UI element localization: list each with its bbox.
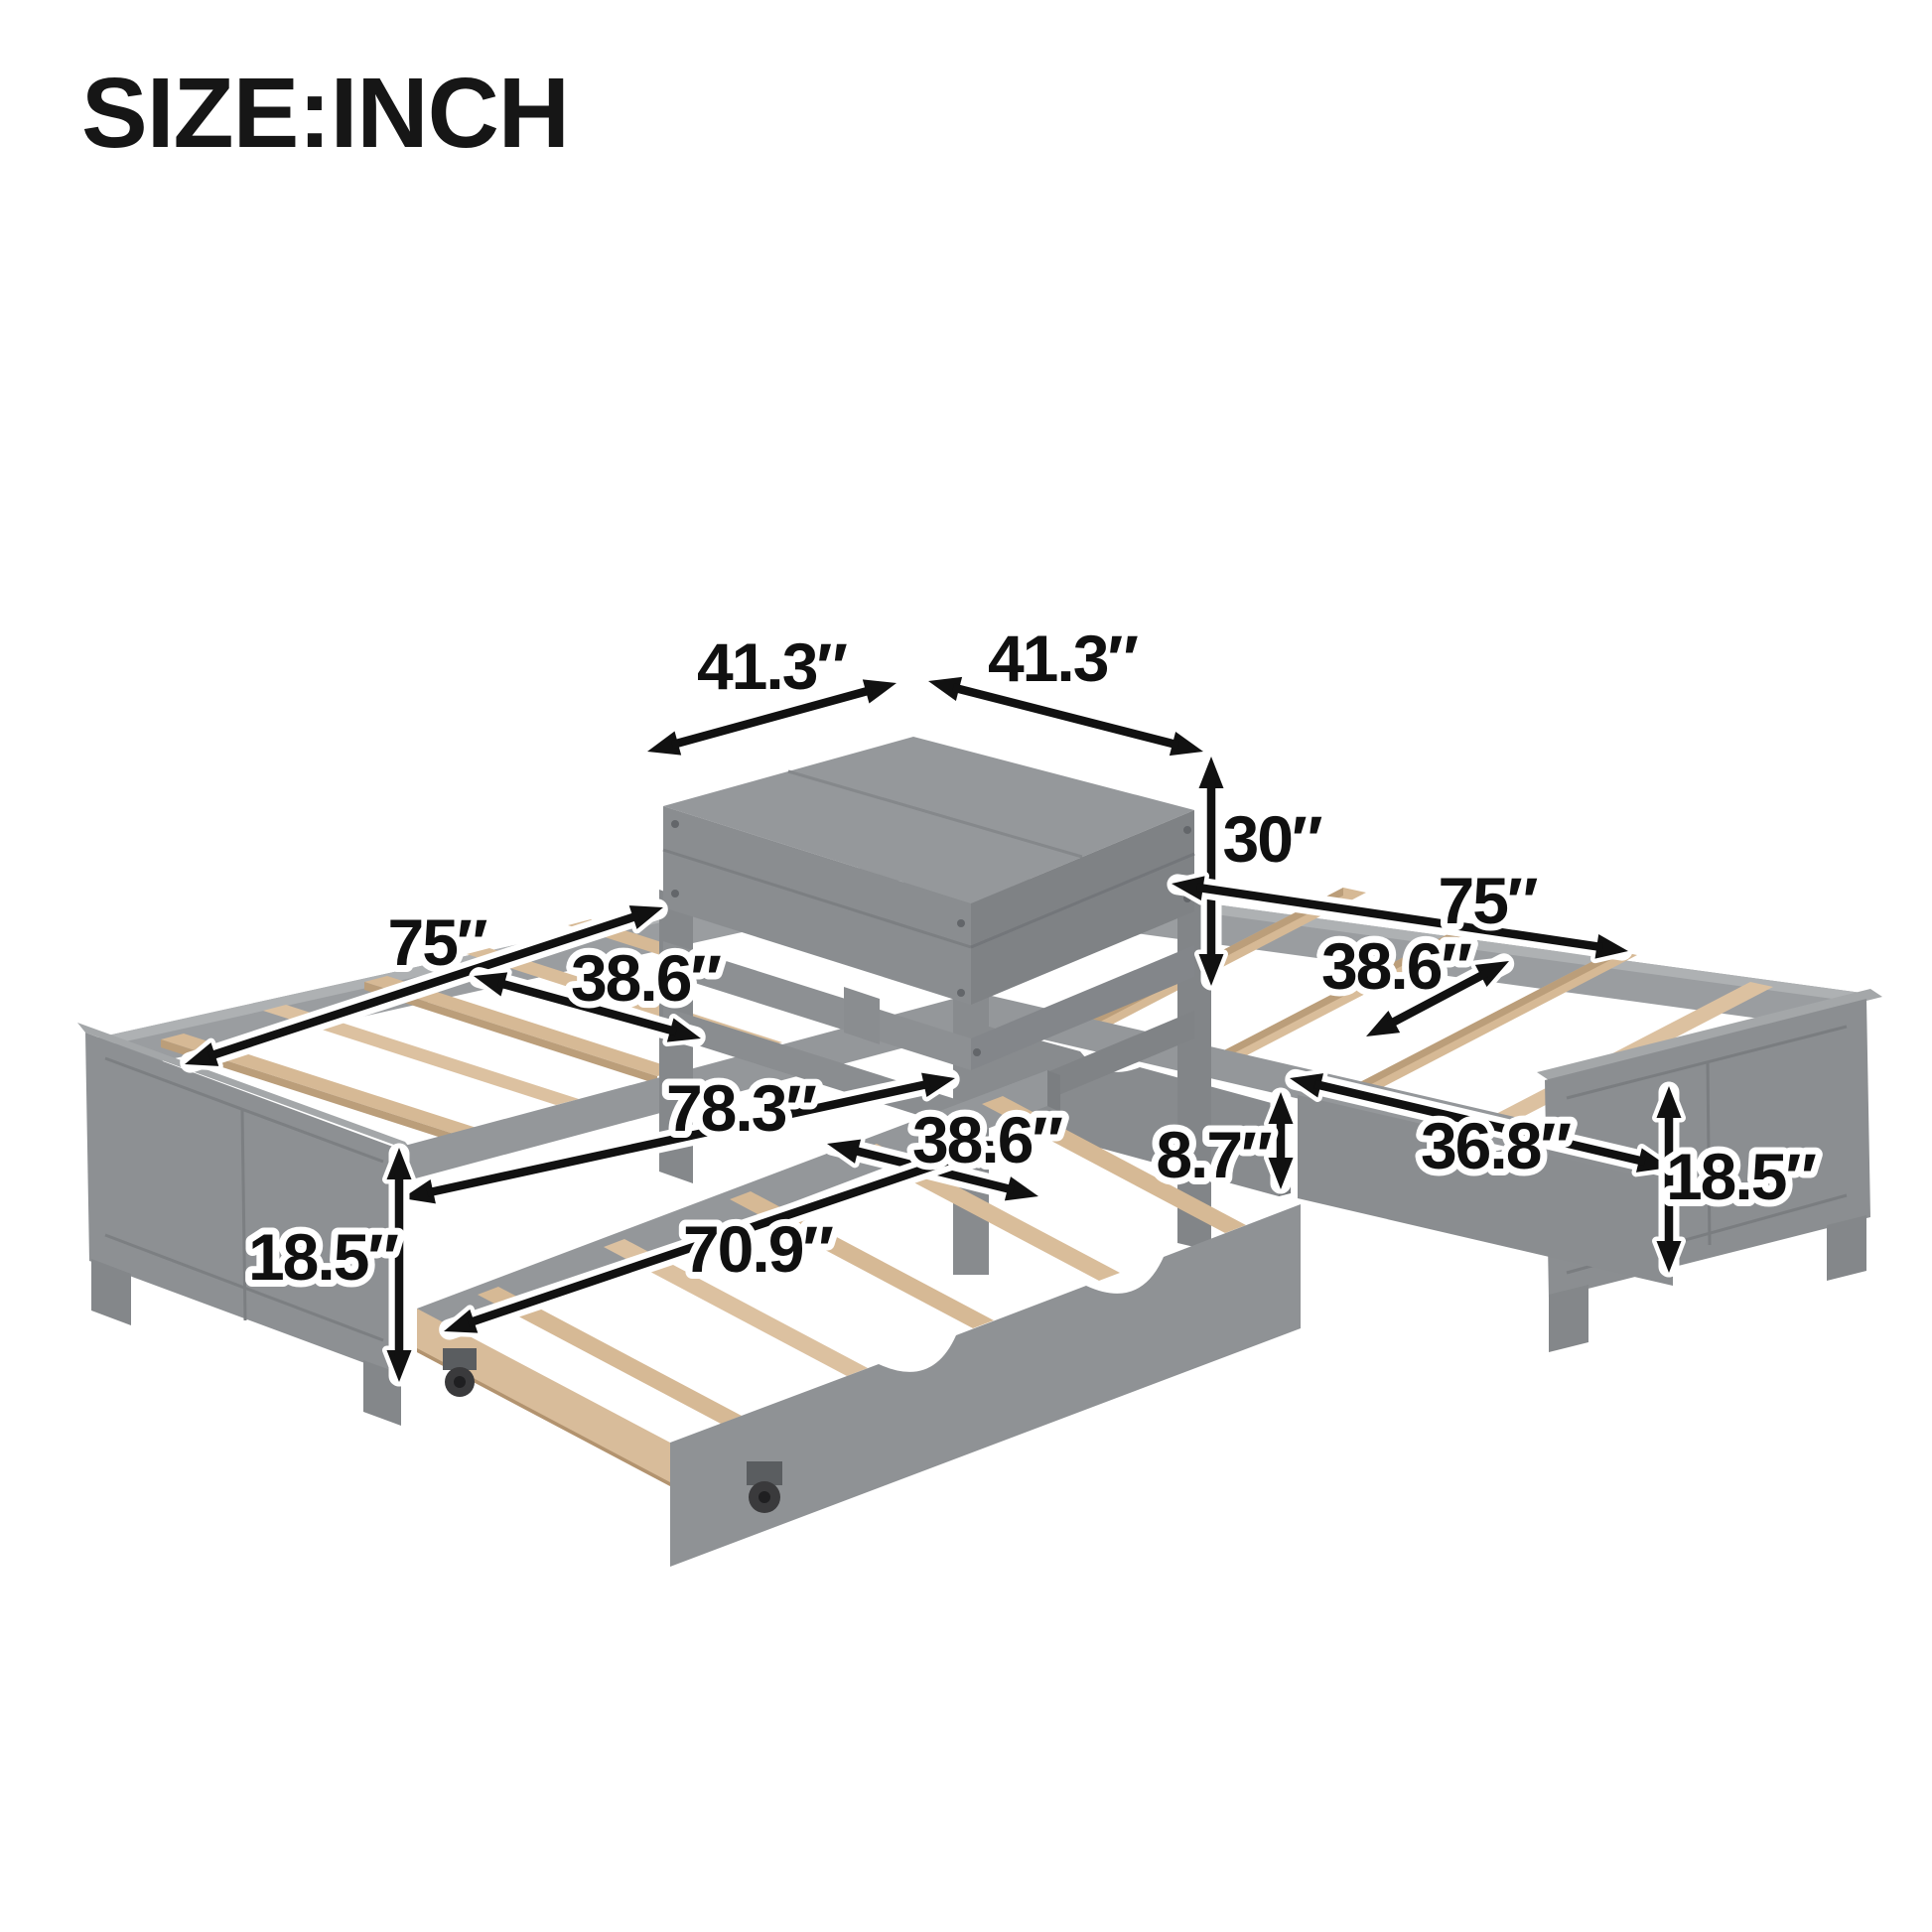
- dimension-arrow: [1269, 1092, 1294, 1189]
- dim-label-trundle-height: 8.7″: [1156, 1118, 1272, 1191]
- dim-label-right-bed-length: 75″: [1438, 864, 1537, 937]
- dim-label-right-bed-width: 38.6″: [1321, 929, 1471, 1003]
- dimension-arrow: [1199, 757, 1224, 986]
- dim-label-platform-width-left: 41.3″: [697, 629, 847, 703]
- page-title: SIZE:INCH: [81, 58, 569, 169]
- bed-dimension-diagram: SIZE:INCH 41.3″ 41.3″ 30″ 75″ 38.6″ 75″ …: [0, 0, 1932, 1932]
- dim-label-trundle-width: 38.6″: [912, 1103, 1062, 1176]
- dim-label-platform-width-right: 41.3″: [988, 621, 1138, 695]
- dim-label-left-bed-width: 38.6″: [571, 941, 721, 1015]
- dim-label-drawer-length: 36.8″: [1421, 1109, 1571, 1182]
- size-diagram-page: SIZE:INCH 41.3″ 41.3″ 30″ 75″ 38.6″ 75″ …: [0, 0, 1932, 1932]
- dim-label-left-footboard-height: 18.5″: [248, 1220, 398, 1294]
- dim-label-overall-trundle-length: 78.3″: [666, 1071, 816, 1145]
- dim-label-right-footboard-height: 18.5″: [1666, 1140, 1816, 1213]
- dim-label-platform-height: 30″: [1222, 802, 1321, 876]
- dim-label-left-bed-length: 75″: [387, 905, 486, 979]
- dim-label-trundle-length: 70.9″: [683, 1212, 833, 1286]
